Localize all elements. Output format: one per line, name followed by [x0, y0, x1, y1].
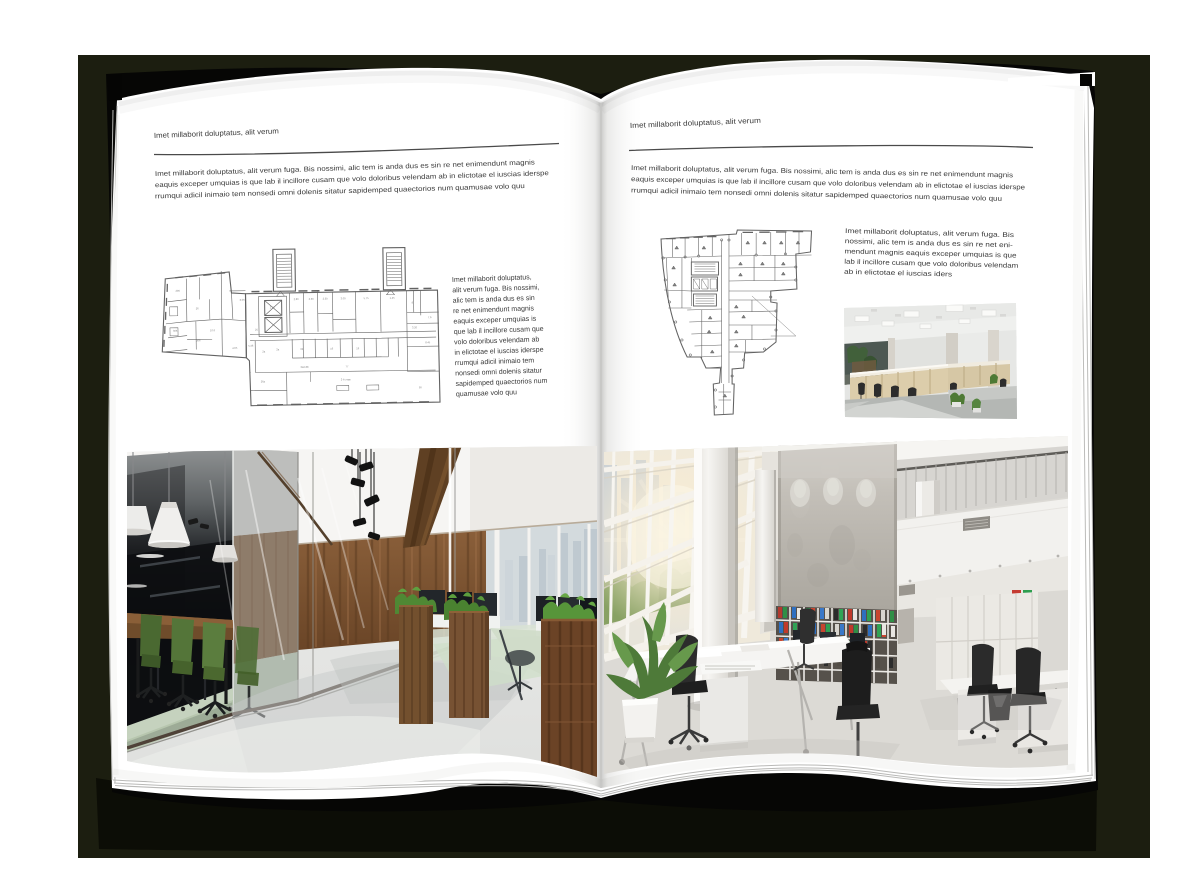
svg-text:206: 206 — [196, 338, 201, 342]
svg-text:5.75: 5.75 — [364, 296, 370, 300]
svg-text:2.30: 2.30 — [323, 297, 329, 301]
svg-text:2-й этаж: 2-й этаж — [341, 377, 351, 381]
svg-text:3.20: 3.20 — [412, 325, 418, 329]
svg-text:4.65: 4.65 — [232, 346, 238, 350]
svg-text:1.45: 1.45 — [390, 296, 396, 300]
svg-text:7.6: 7.6 — [428, 315, 432, 319]
svg-text:2.30: 2.30 — [309, 297, 315, 301]
svg-text:10.6: 10.6 — [210, 328, 216, 332]
svg-text:3.06: 3.06 — [240, 298, 246, 302]
svg-text:206: 206 — [175, 289, 180, 293]
svg-text:342.88: 342.88 — [300, 365, 309, 369]
svg-text:5.36: 5.36 — [248, 344, 254, 348]
svg-text:306: 306 — [173, 329, 178, 333]
svg-text:3.00: 3.00 — [341, 296, 347, 300]
svg-text:2.80: 2.80 — [294, 297, 300, 301]
svg-text:8.45: 8.45 — [425, 340, 431, 344]
svg-text:26a: 26a — [261, 379, 266, 383]
svg-text:2.75: 2.75 — [270, 305, 276, 309]
